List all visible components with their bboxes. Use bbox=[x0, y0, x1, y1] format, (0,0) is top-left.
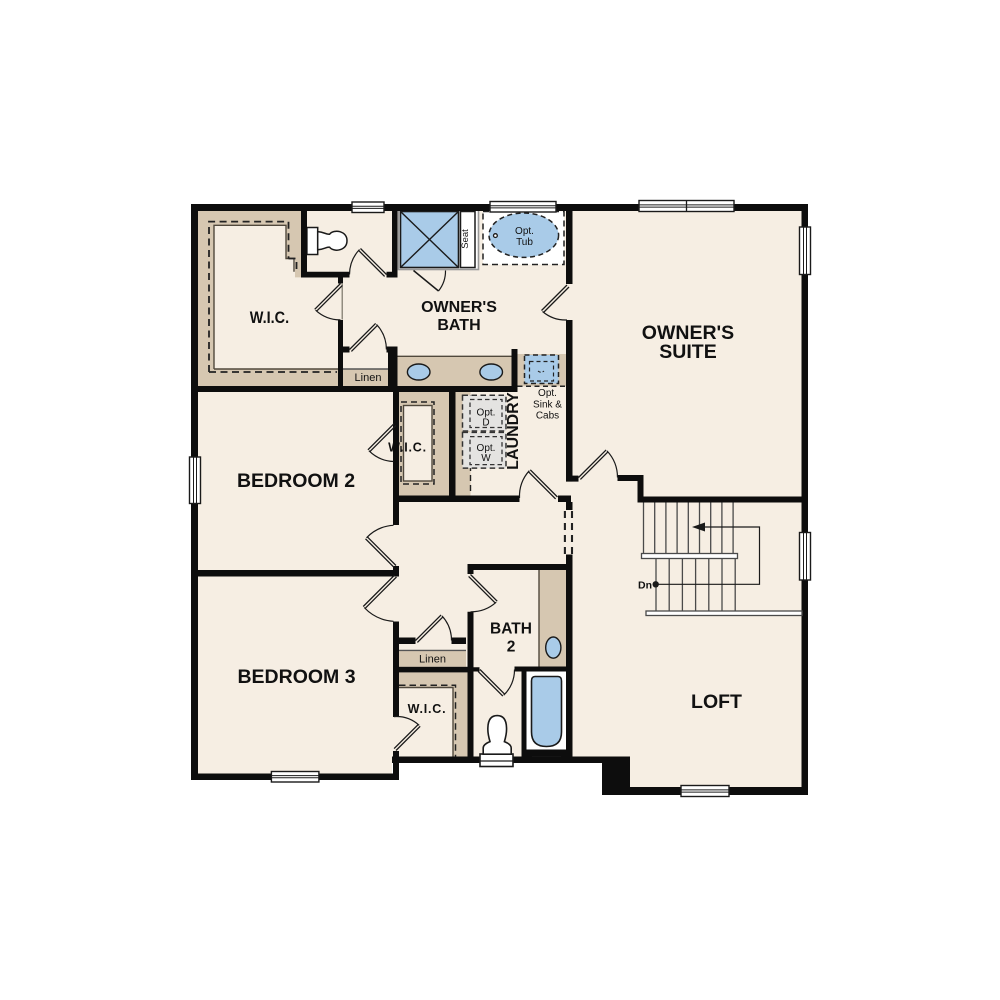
svg-text:SUITE: SUITE bbox=[659, 341, 716, 363]
svg-text:BATH: BATH bbox=[490, 621, 532, 638]
svg-text:BEDROOM 3: BEDROOM 3 bbox=[237, 666, 355, 688]
svg-text:Tub: Tub bbox=[516, 237, 533, 248]
svg-text:LOFT: LOFT bbox=[691, 691, 742, 713]
svg-text:Dn: Dn bbox=[638, 580, 652, 592]
svg-text:Seat: Seat bbox=[460, 229, 471, 249]
svg-text:W.I.C.: W.I.C. bbox=[250, 309, 289, 327]
svg-text:Opt.: Opt. bbox=[515, 226, 534, 237]
svg-text:Linen: Linen bbox=[419, 654, 446, 666]
svg-text:Linen: Linen bbox=[355, 372, 382, 384]
svg-text:OWNER'S: OWNER'S bbox=[421, 299, 497, 316]
svg-text:W: W bbox=[481, 453, 491, 464]
svg-text:Opt.: Opt. bbox=[538, 388, 557, 399]
svg-text:LAUNDRY: LAUNDRY bbox=[505, 392, 522, 470]
svg-text:BEDROOM 2: BEDROOM 2 bbox=[237, 470, 355, 492]
svg-text:W.I.C.: W.I.C. bbox=[408, 702, 447, 716]
svg-text:BATH: BATH bbox=[437, 317, 480, 334]
svg-text:D: D bbox=[482, 418, 489, 429]
svg-text:Cabs: Cabs bbox=[536, 411, 559, 422]
svg-text:Sink &: Sink & bbox=[533, 399, 562, 410]
svg-text:2: 2 bbox=[507, 639, 516, 656]
